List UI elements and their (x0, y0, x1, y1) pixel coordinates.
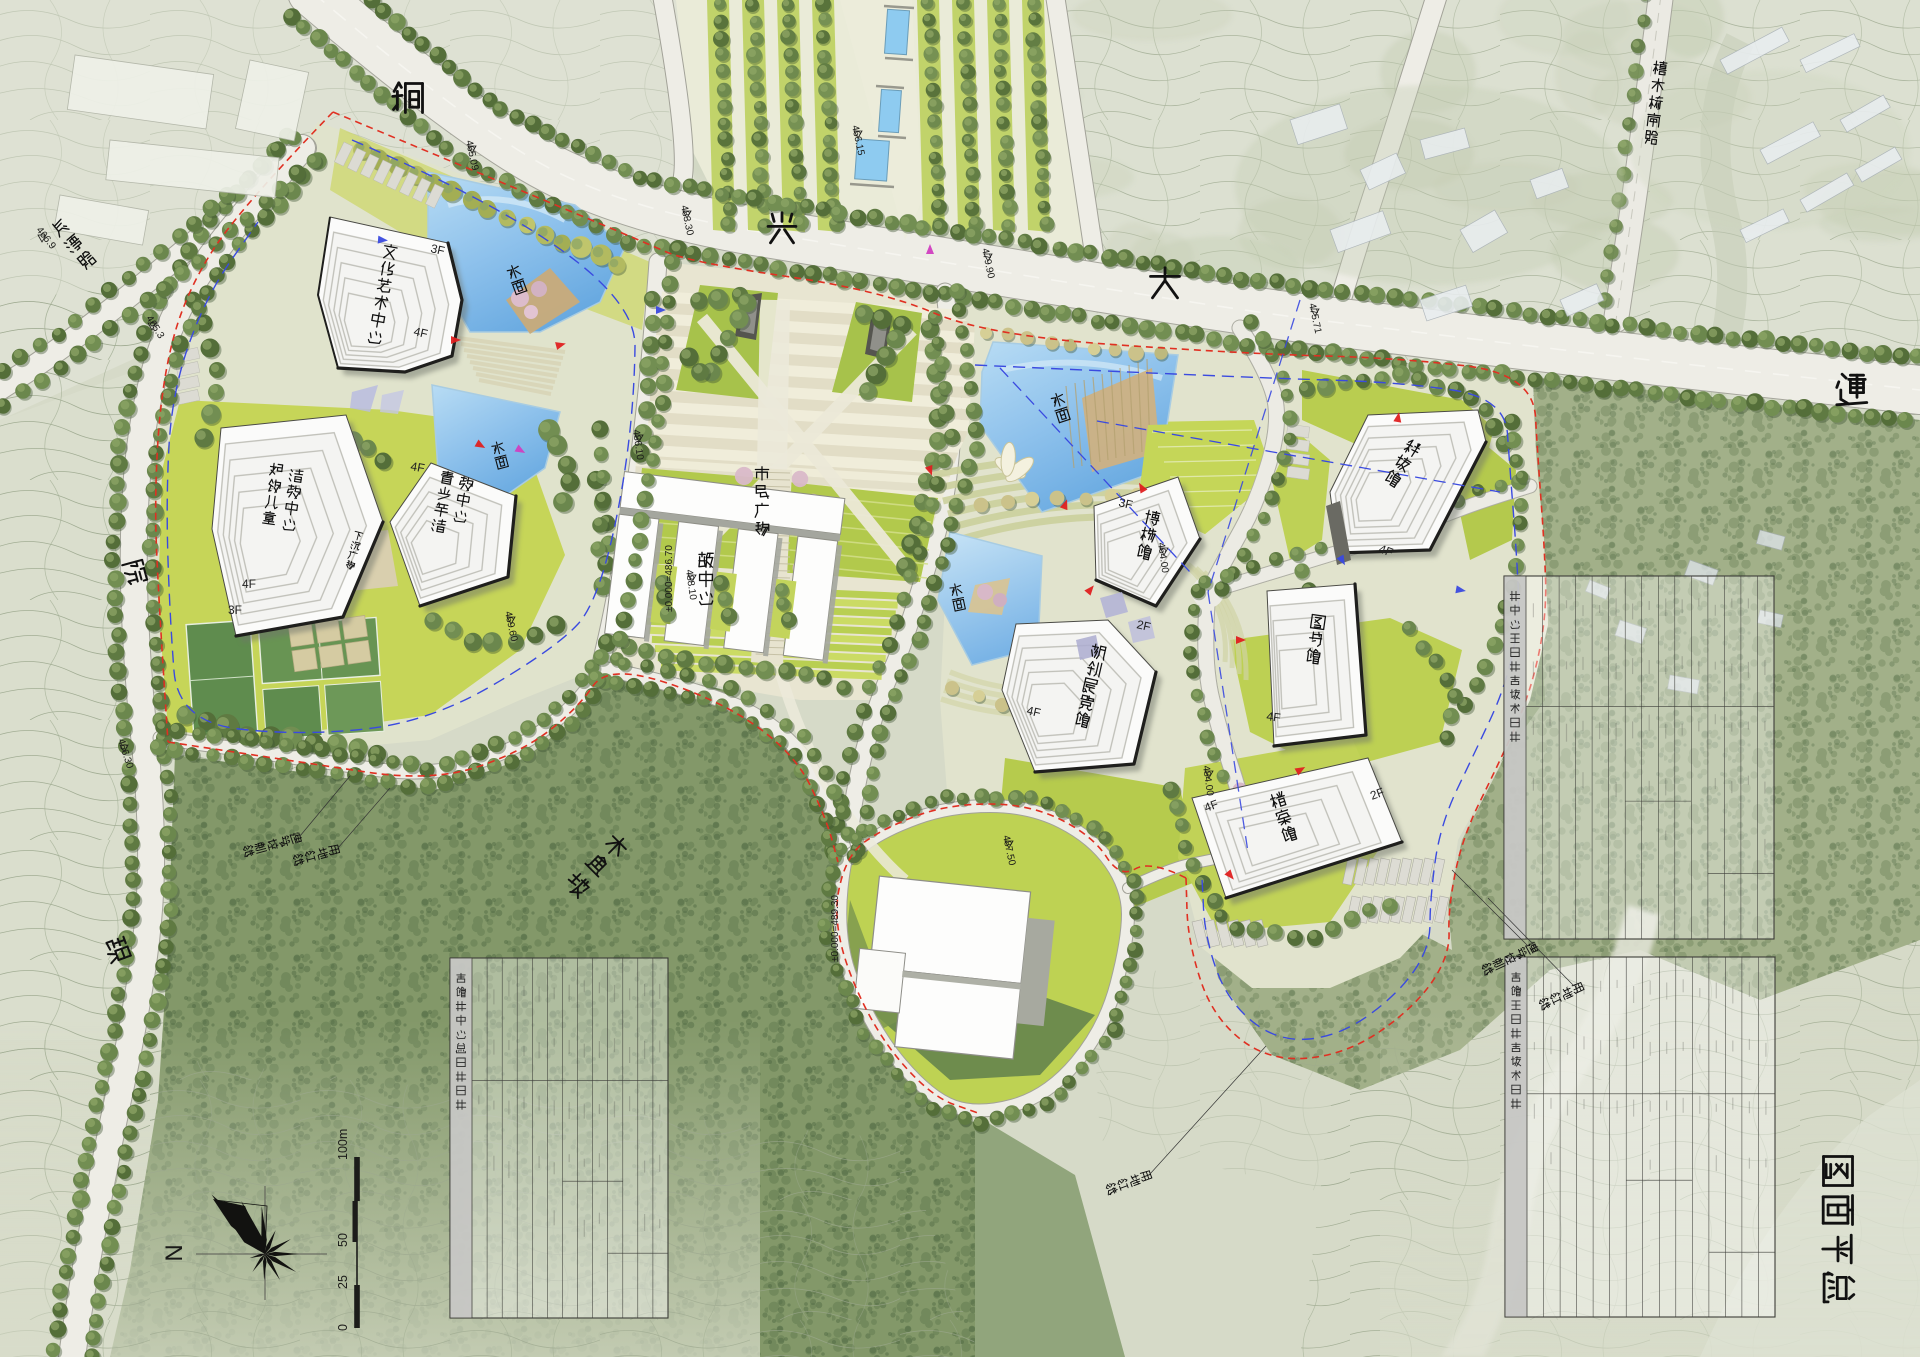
svg-text:4F: 4F (409, 459, 425, 475)
svg-text:±0.000=489.30: ±0.000=489.30 (830, 895, 841, 962)
svg-text:0: 0 (336, 1324, 350, 1331)
svg-text:25: 25 (336, 1275, 350, 1289)
svg-text:4F: 4F (1266, 709, 1282, 725)
svg-text:N: N (161, 1244, 188, 1261)
svg-text:4F: 4F (242, 577, 256, 591)
svg-text:3F: 3F (228, 603, 242, 617)
svg-text:100m: 100m (336, 1129, 350, 1160)
svg-text:±0.000=486.70: ±0.000=486.70 (664, 545, 675, 612)
svg-text:50: 50 (336, 1233, 350, 1247)
